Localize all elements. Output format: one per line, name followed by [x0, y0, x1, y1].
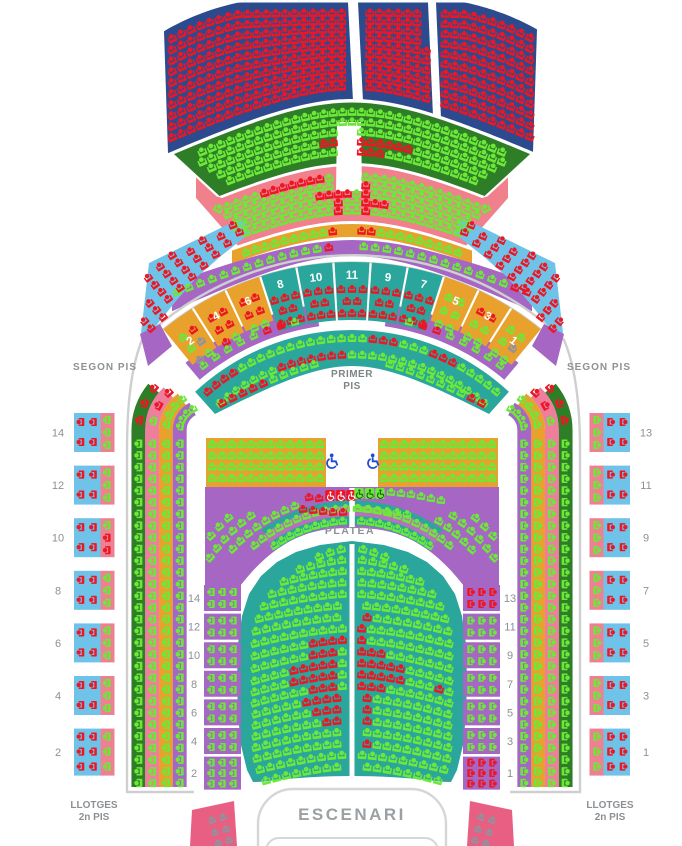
svg-text:12: 12 — [52, 480, 64, 492]
svg-text:8: 8 — [55, 585, 61, 597]
svg-text:1: 1 — [643, 747, 649, 759]
svg-text:ESCENARI: ESCENARI — [298, 805, 406, 824]
svg-text:13: 13 — [640, 428, 652, 440]
svg-text:6: 6 — [191, 707, 197, 719]
svg-text:PLATEA: PLATEA — [325, 525, 375, 537]
svg-text:10: 10 — [52, 533, 64, 545]
svg-text:14: 14 — [188, 593, 200, 605]
svg-text:1: 1 — [507, 768, 513, 780]
svg-text:SEGON PIS: SEGON PIS — [567, 362, 631, 373]
svg-text:4: 4 — [191, 736, 197, 748]
svg-text:5: 5 — [643, 638, 649, 650]
svg-text:2: 2 — [191, 768, 197, 780]
svg-text:9: 9 — [507, 650, 513, 662]
svg-text:LLOTGES: LLOTGES — [586, 800, 634, 811]
svg-text:3: 3 — [507, 736, 513, 748]
svg-text:10: 10 — [309, 271, 323, 284]
svg-text:8: 8 — [191, 679, 197, 691]
svg-text:PIS: PIS — [343, 381, 361, 392]
svg-text:10: 10 — [188, 650, 200, 662]
svg-text:PRIMER: PRIMER — [331, 369, 373, 380]
svg-text:SEGON PIS: SEGON PIS — [73, 362, 137, 373]
svg-text:2n PIS: 2n PIS — [79, 812, 110, 823]
svg-text:7: 7 — [507, 679, 513, 691]
svg-text:2: 2 — [55, 747, 61, 759]
svg-text:12: 12 — [188, 622, 200, 634]
svg-text:14: 14 — [52, 428, 64, 440]
svg-text:9: 9 — [643, 533, 649, 545]
svg-text:6: 6 — [55, 638, 61, 650]
svg-text:11: 11 — [640, 480, 651, 492]
svg-text:11: 11 — [346, 270, 359, 282]
svg-text:LLOTGES: LLOTGES — [70, 800, 118, 811]
svg-text:11: 11 — [504, 622, 515, 634]
svg-text:2n PIS: 2n PIS — [595, 812, 626, 823]
svg-text:4: 4 — [55, 691, 61, 703]
svg-text:5: 5 — [507, 707, 513, 719]
svg-text:3: 3 — [643, 691, 649, 703]
svg-text:7: 7 — [643, 585, 649, 597]
svg-text:13: 13 — [504, 593, 516, 605]
